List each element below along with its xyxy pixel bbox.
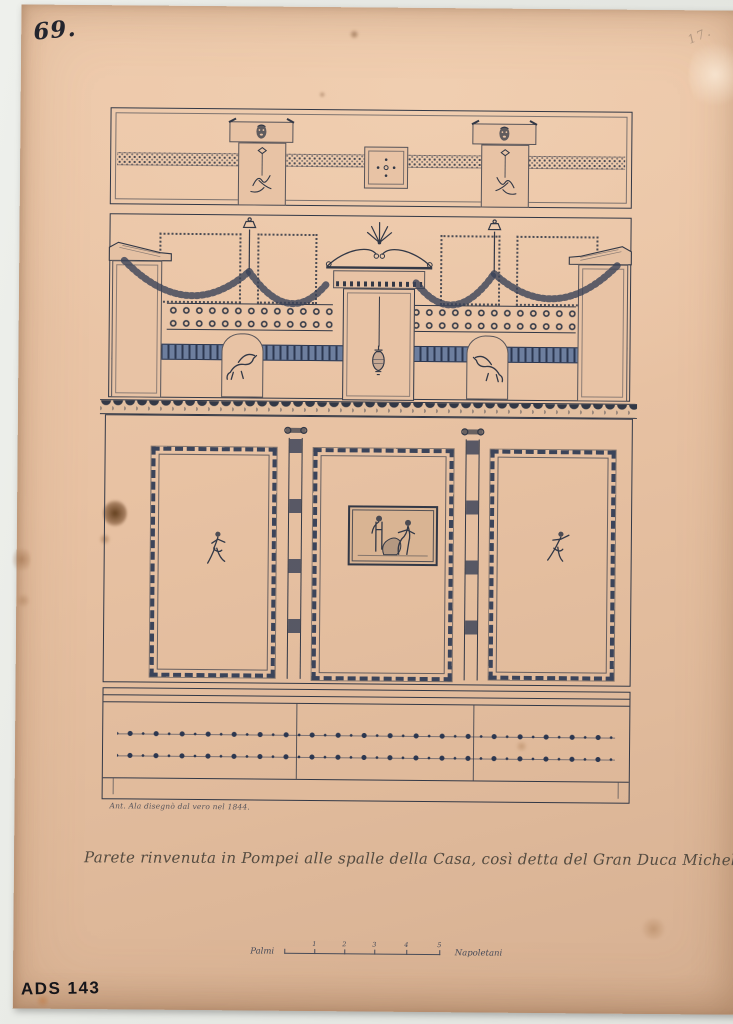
candelabrum-icon	[243, 218, 500, 272]
artist-signature: Ant. Ala disegnò dal vero nel 1844.	[109, 801, 250, 811]
scale-tick	[374, 950, 375, 955]
hanging-ornament-icon	[490, 148, 520, 204]
panel-divider-left	[287, 438, 303, 679]
scale-tick-label: 4	[404, 941, 408, 949]
pilaster-capital-icon	[461, 423, 485, 439]
mask-aedicula-left-panel	[238, 142, 287, 205]
scale-right-label: Napoletani	[455, 948, 503, 958]
paper-sheet: 69. 17.	[13, 4, 733, 1014]
scale-tick	[406, 950, 407, 955]
dado-main-band	[103, 702, 630, 783]
scale-tick-label: 5	[437, 941, 441, 949]
scale-tick-label: 2	[342, 940, 346, 948]
rosette-band	[117, 728, 615, 742]
pinax-inner-frame	[352, 509, 434, 562]
scale-tick	[284, 949, 285, 954]
attic-register	[110, 107, 633, 209]
scale-tick	[439, 950, 440, 955]
pinax	[348, 505, 439, 566]
flying-figure-icon	[205, 528, 231, 578]
medallion-inner-frame	[368, 150, 404, 184]
scale-left-label: Palmi	[250, 946, 274, 956]
mask-aedicula-right-crown	[472, 123, 536, 145]
pilaster-capital-icon	[284, 422, 308, 438]
archive-code: ADS 143	[21, 978, 101, 999]
theatre-mask-icon	[495, 126, 513, 142]
garland-swag-icon	[109, 214, 633, 403]
scale-tick	[314, 949, 315, 954]
scanned-archival-drawing: { "scan": { "background_color": "#e7e9e4…	[0, 0, 733, 1024]
rosette-band	[117, 750, 615, 764]
center-medallion	[364, 146, 408, 188]
theatre-mask-icon	[252, 123, 270, 139]
dado-register	[102, 687, 631, 804]
scale-bar: Palmi 1 2 3 4 5 Napoletani	[250, 938, 502, 966]
mask-aedicula-right-panel	[481, 144, 530, 207]
dado-base-band	[113, 778, 619, 798]
scale-tick-label: 3	[372, 941, 376, 949]
flying-figure-icon	[545, 527, 573, 577]
hanging-ornament-icon	[247, 145, 277, 201]
dado-divider	[296, 704, 298, 779]
main-register	[103, 414, 633, 687]
mask-aedicula-left-crown	[229, 121, 293, 143]
middle-register	[108, 213, 632, 402]
scale-tick-label: 1	[312, 940, 316, 948]
panel-divider-right	[464, 439, 480, 680]
dado-divider	[473, 705, 475, 780]
scale-tick	[344, 949, 345, 954]
drawing-caption: Parete rinvenuta in Pompei alle spalle d…	[84, 848, 659, 869]
scale-line	[284, 953, 440, 955]
